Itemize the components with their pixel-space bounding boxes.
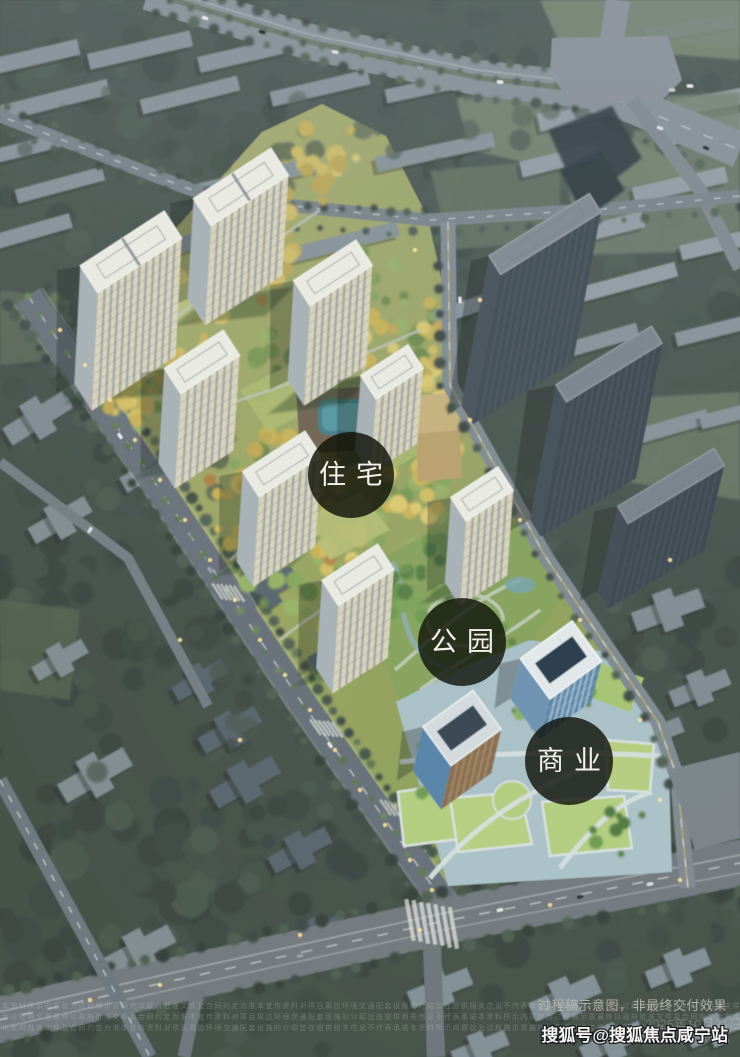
svg-text:住宅: 住宅 xyxy=(319,460,393,490)
svg-text:为过程稿示意最终以政府批准文件及合同约定为准本宣传资料对项目: 为过程稿示意最终以政府批准文件及合同约定为准本宣传资料对项目周边环境交通配套设施… xyxy=(2,1012,740,1021)
svg-text:商业: 商业 xyxy=(537,746,611,776)
svg-text:公园: 公园 xyxy=(430,627,504,657)
svg-text:搜狐号@搜狐焦点咸宁站: 搜狐号@搜狐焦点咸宁站 xyxy=(541,1025,728,1045)
svg-text:过程稿示意图，非最终交付效果: 过程稿示意图，非最终交付效果 xyxy=(538,998,727,1013)
